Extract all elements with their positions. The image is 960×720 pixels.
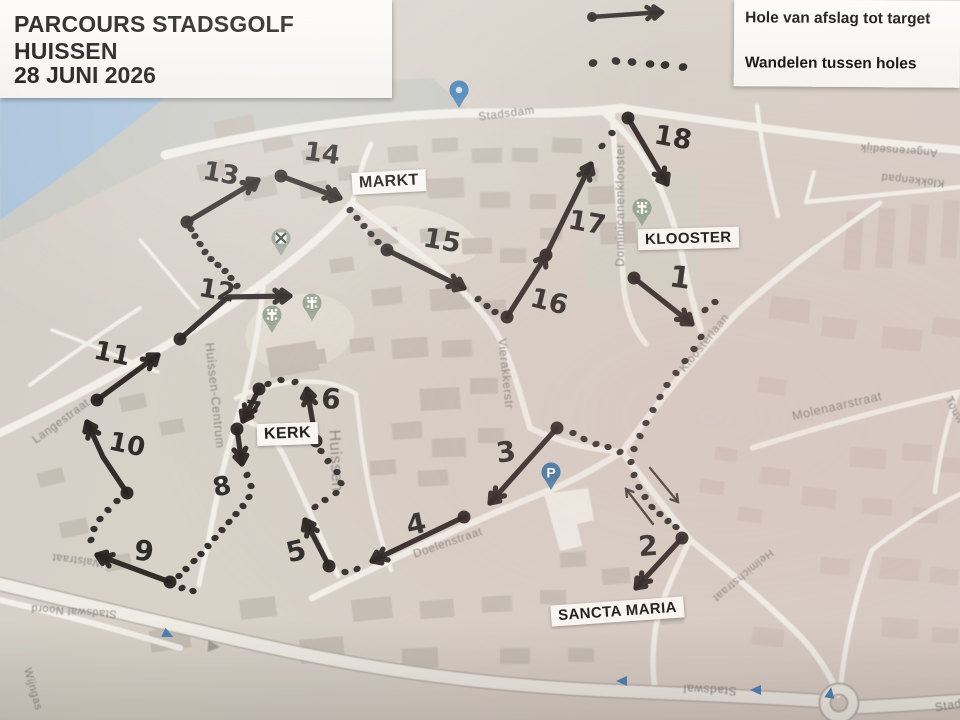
building <box>568 648 594 662</box>
building <box>472 148 502 164</box>
walk-dot <box>103 506 112 514</box>
tee-dot <box>231 423 244 436</box>
building <box>560 551 587 568</box>
hole-number: 11 <box>91 336 133 373</box>
road <box>806 172 814 202</box>
building <box>59 517 90 538</box>
walk-dot <box>213 261 222 269</box>
building <box>37 467 66 488</box>
building <box>714 447 737 463</box>
walk-dot <box>90 525 98 532</box>
walk-dot <box>207 256 215 262</box>
building <box>801 486 837 508</box>
legend-walk-dot <box>678 62 689 72</box>
street-label: Huissen-Centrum <box>202 342 227 449</box>
building <box>432 437 467 457</box>
building <box>875 207 896 268</box>
walk-dot <box>569 430 577 436</box>
hole-number: 6 <box>320 382 342 416</box>
hole-number: 12 <box>197 273 238 309</box>
building <box>940 457 960 474</box>
legend-walk-dot <box>660 60 670 69</box>
street-label: Wijngas <box>21 667 44 712</box>
building <box>759 466 791 486</box>
building <box>901 443 932 462</box>
hole-number: 14 <box>302 137 342 172</box>
walk-dot <box>597 141 607 150</box>
building <box>879 557 920 582</box>
building <box>500 648 530 664</box>
building <box>329 256 355 273</box>
building <box>462 237 493 254</box>
tee-dot <box>676 532 689 545</box>
tee-dot <box>174 333 187 346</box>
tee-dot <box>540 249 553 262</box>
building <box>482 595 513 612</box>
tee-dot <box>275 170 288 183</box>
hole-number: 7 <box>243 395 263 425</box>
walk-dot <box>177 583 187 592</box>
building <box>881 326 923 352</box>
walk-dot <box>656 511 664 517</box>
parking-lot <box>544 488 594 551</box>
walk-dot <box>224 518 233 527</box>
title-card: PARCOURS STADSGOLF HUISSEN 28 JUNI 2026 <box>0 0 392 98</box>
tee-dot <box>628 272 641 285</box>
building <box>239 596 277 620</box>
tee-dot <box>164 576 177 589</box>
walk-dot <box>247 482 255 489</box>
road <box>757 106 778 216</box>
walk-dot <box>238 502 247 510</box>
street-label: Molenaarstraat <box>791 389 884 423</box>
hole-number: 17 <box>566 204 608 241</box>
building <box>418 469 449 487</box>
walk-dot <box>700 305 710 314</box>
building <box>391 421 422 440</box>
street-label: Stadsdam <box>478 105 536 124</box>
building <box>432 138 458 153</box>
walk-dot <box>647 503 656 511</box>
windmill-poi-icon <box>272 229 291 257</box>
building <box>480 192 510 208</box>
walk-dot <box>200 248 209 257</box>
tee-dot <box>622 112 635 125</box>
walk-dot <box>218 526 227 534</box>
building <box>470 378 498 394</box>
tee-dot <box>323 560 336 573</box>
page-title: PARCOURS STADSGOLF HUISSEN <box>14 11 392 65</box>
building <box>849 447 886 469</box>
walk-dot <box>96 515 105 523</box>
walk-dot <box>317 447 326 455</box>
walk-dot <box>245 493 254 501</box>
walk-dot <box>196 240 205 248</box>
hole-number: 18 <box>652 119 694 156</box>
building <box>500 248 526 263</box>
building <box>881 617 918 639</box>
street-label: Klokkenpad <box>880 171 944 190</box>
tee-dot <box>91 394 104 407</box>
legend-walk-dot <box>645 60 654 68</box>
event-date: 28 JUNI 2026 <box>14 62 156 89</box>
walk-dot <box>341 568 349 575</box>
building <box>932 627 959 644</box>
building <box>512 148 538 162</box>
building <box>861 497 892 516</box>
tee-dot <box>458 511 471 524</box>
building <box>540 590 566 604</box>
hole-number: 15 <box>421 222 463 259</box>
svg-text:P: P <box>546 465 555 481</box>
walk-dot <box>353 214 361 221</box>
hole-number: 16 <box>527 282 571 321</box>
street-label: Vierakkerstr <box>495 338 516 410</box>
building <box>821 316 857 340</box>
building <box>940 200 960 259</box>
walk-dot <box>579 435 588 443</box>
place-label-kerk: KERK <box>257 422 319 446</box>
building <box>349 337 374 353</box>
place-label-klooster: KLOOSTER <box>638 227 739 251</box>
building <box>757 376 787 396</box>
building <box>370 459 397 476</box>
legend-walk-dot <box>627 58 637 67</box>
walk-dot <box>630 446 638 453</box>
building <box>419 599 454 619</box>
tee-dot <box>121 487 134 500</box>
tee-dot <box>181 216 194 229</box>
walk-dot <box>189 557 198 565</box>
building <box>428 177 465 198</box>
hole-number: 4 <box>403 506 429 542</box>
street-label: Helmichstraat <box>710 547 775 604</box>
building <box>769 296 812 324</box>
hole-number: 13 <box>201 156 242 192</box>
building <box>371 286 403 306</box>
tee-dot <box>253 383 266 396</box>
building <box>419 387 460 411</box>
street-label: Stadswal <box>683 682 737 699</box>
building <box>391 337 428 359</box>
walk-dot <box>242 470 252 479</box>
legend-walk-dot <box>611 56 622 66</box>
tee-dot <box>501 311 514 324</box>
road <box>140 240 198 308</box>
walk-dot <box>189 587 197 594</box>
legend-item: Hole van afslag tot target <box>745 9 930 28</box>
walk-dot <box>182 565 191 573</box>
building <box>908 203 929 264</box>
walk-dot <box>232 511 240 517</box>
walk-dot <box>290 377 300 386</box>
building <box>601 567 630 585</box>
building <box>530 194 556 209</box>
building <box>931 316 960 337</box>
walk-dot <box>711 298 719 305</box>
building <box>819 557 850 577</box>
walk-dot <box>191 232 199 239</box>
walk-dot <box>86 535 96 544</box>
building <box>737 507 762 523</box>
walk-dot <box>635 483 643 490</box>
building <box>387 145 418 163</box>
building <box>929 567 958 585</box>
legend-card: Hole van afslag tot targetWandelen tusse… <box>734 0 960 88</box>
hole-number: 3 <box>494 434 518 469</box>
building <box>119 392 148 412</box>
building <box>699 479 725 496</box>
street-label: Dominicanenklooster <box>613 143 627 266</box>
building <box>751 626 785 647</box>
building <box>442 339 473 357</box>
building <box>351 596 393 622</box>
building <box>552 137 583 153</box>
walk-dot <box>221 267 230 275</box>
tee-dot <box>551 422 564 435</box>
tee-dot <box>587 12 597 22</box>
walk-dot <box>641 493 650 501</box>
walk-dot <box>175 573 183 580</box>
legend-walk-dot <box>587 58 598 69</box>
legend-item: Wandelen tussen holes <box>745 54 917 73</box>
walk-dot <box>113 498 121 504</box>
hole-number: 8 <box>210 470 234 503</box>
hole-number: 10 <box>106 427 148 464</box>
map-photo: StadsdamDominicanenkloosterKloosterlaanK… <box>0 0 960 720</box>
road <box>356 394 391 570</box>
place-label-markt: MARKT <box>351 169 426 195</box>
building <box>159 418 185 436</box>
hole-number: 2 <box>637 529 659 563</box>
huissen-map: StadsdamDominicanenkloosterKloosterlaanK… <box>0 0 960 720</box>
hole-number: 9 <box>133 534 156 569</box>
walk-dot <box>321 496 329 503</box>
tee-dot <box>381 244 394 257</box>
